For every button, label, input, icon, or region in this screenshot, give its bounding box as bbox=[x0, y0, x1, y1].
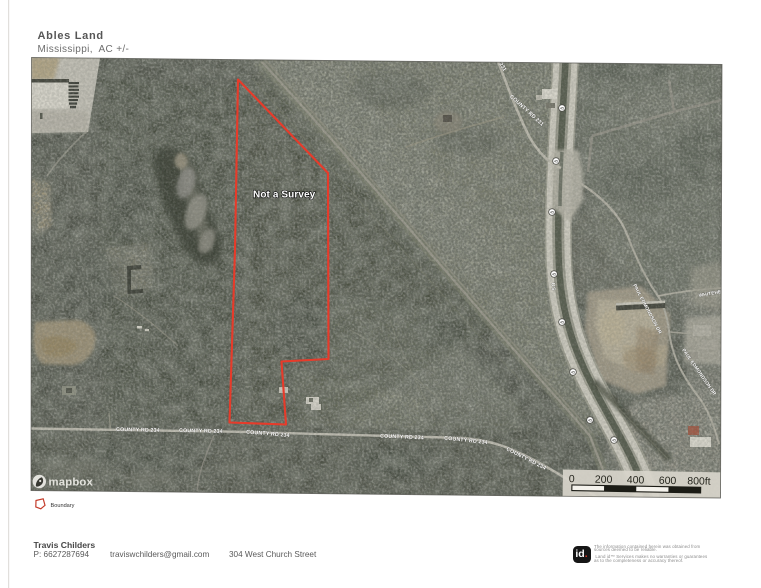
svg-text:Boundary: Boundary bbox=[51, 503, 75, 509]
